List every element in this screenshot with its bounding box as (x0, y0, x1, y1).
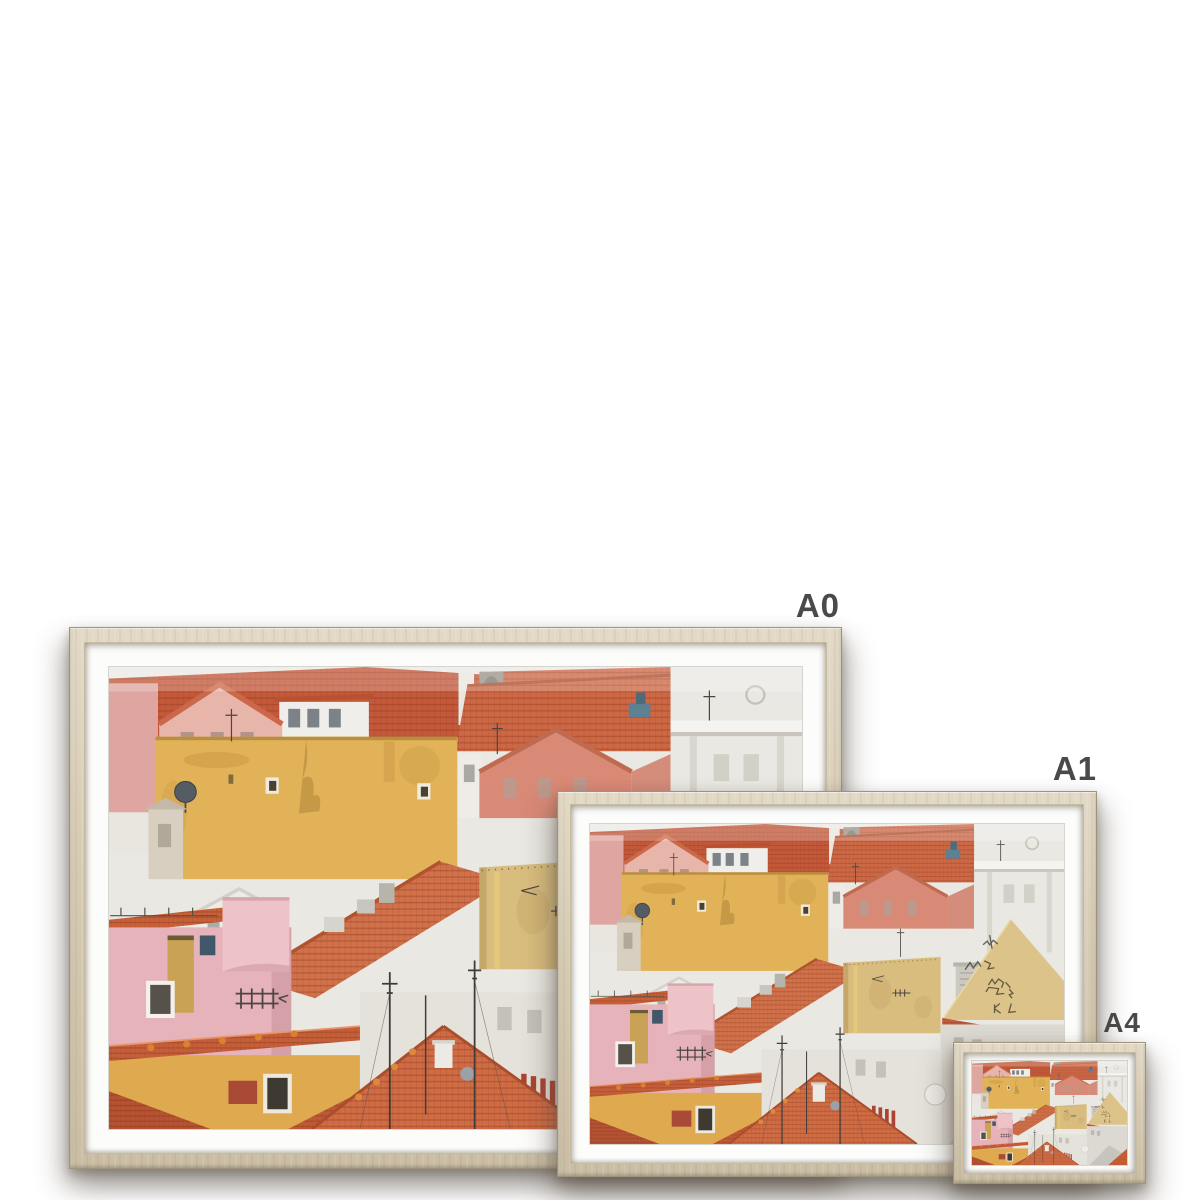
artwork-photo-a4 (972, 1061, 1127, 1165)
framed-print-a4[interactable] (953, 1042, 1146, 1184)
size-label-a1: A1 (947, 752, 1097, 785)
frame-mat-a4 (963, 1052, 1136, 1174)
frame-moulding-a4 (953, 1042, 1146, 1184)
frame-size-comparison-canvas: A0 A1 A4 (0, 0, 1200, 1200)
size-label-a0: A0 (690, 589, 840, 622)
